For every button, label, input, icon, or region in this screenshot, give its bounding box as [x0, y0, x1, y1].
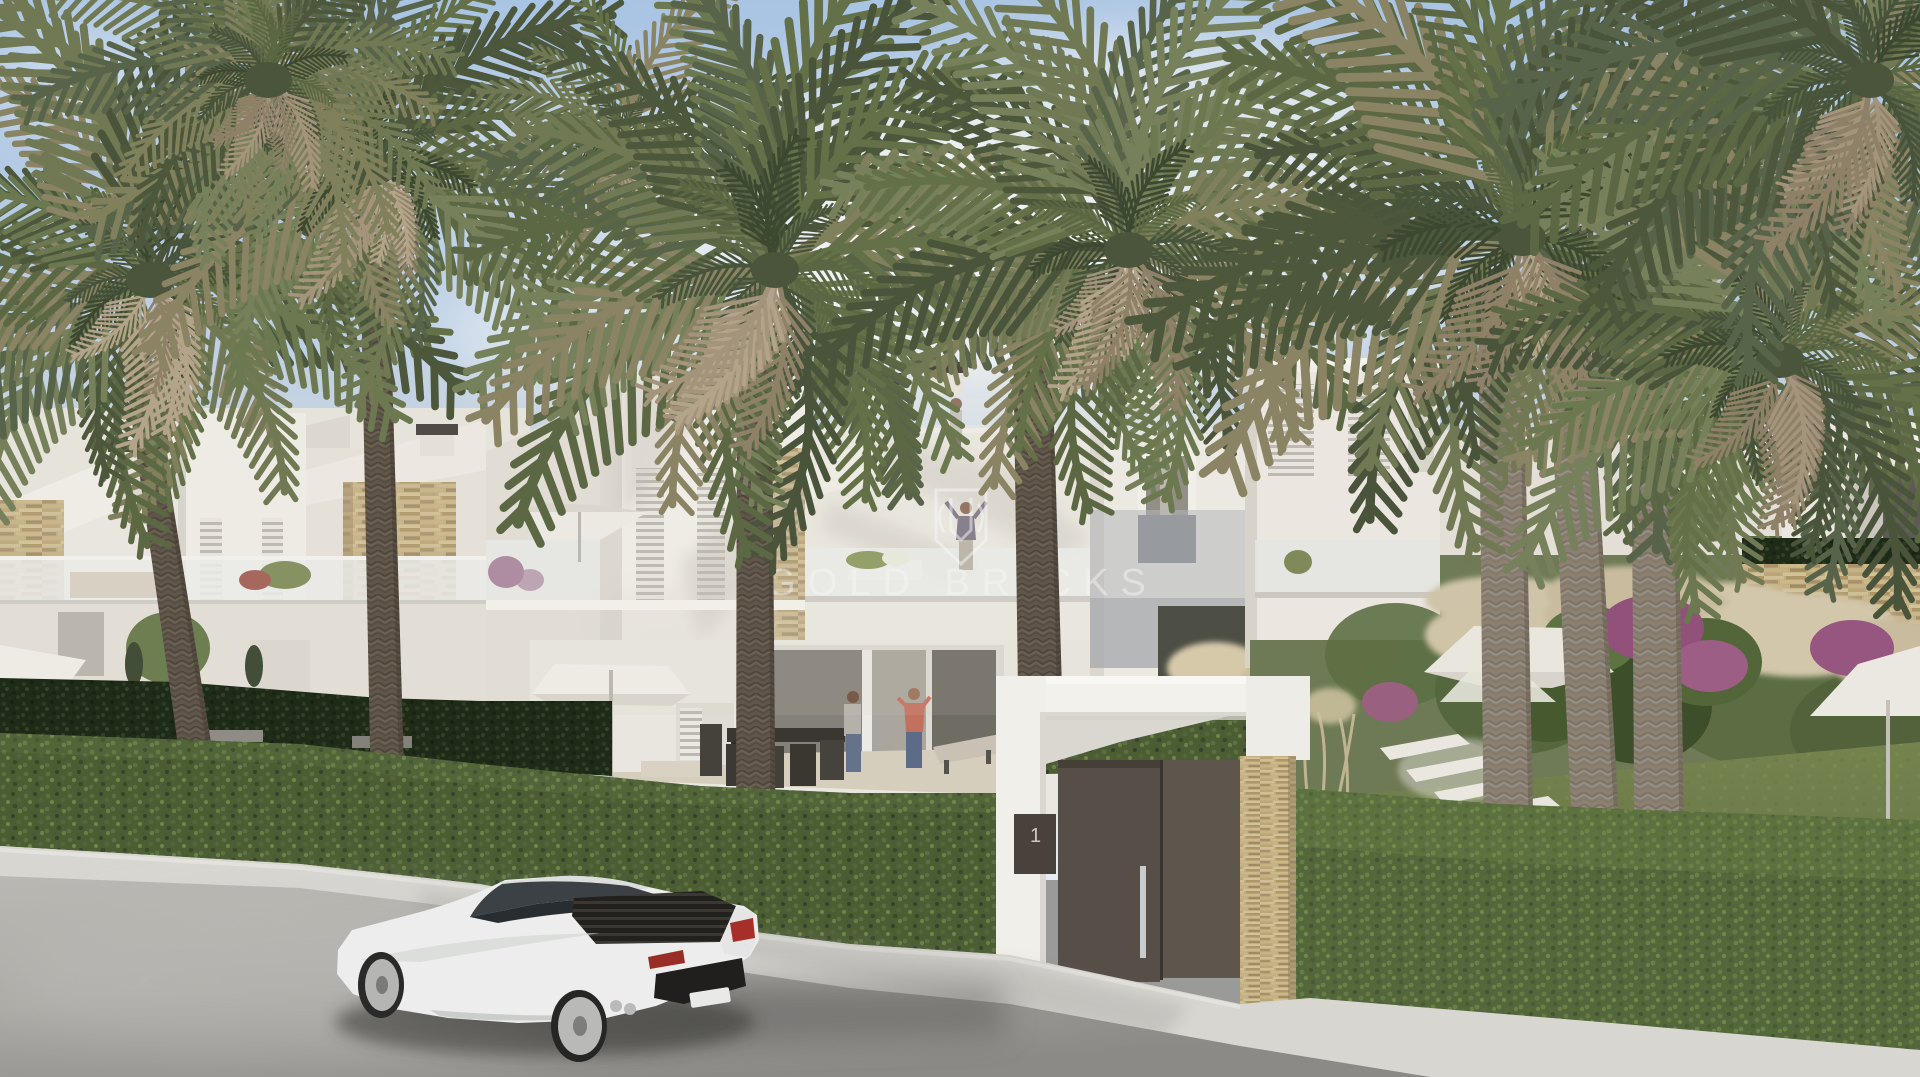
- svg-text:GOLD BRICKS: GOLD BRICKS: [766, 562, 1158, 604]
- svg-text:1: 1: [1030, 825, 1041, 847]
